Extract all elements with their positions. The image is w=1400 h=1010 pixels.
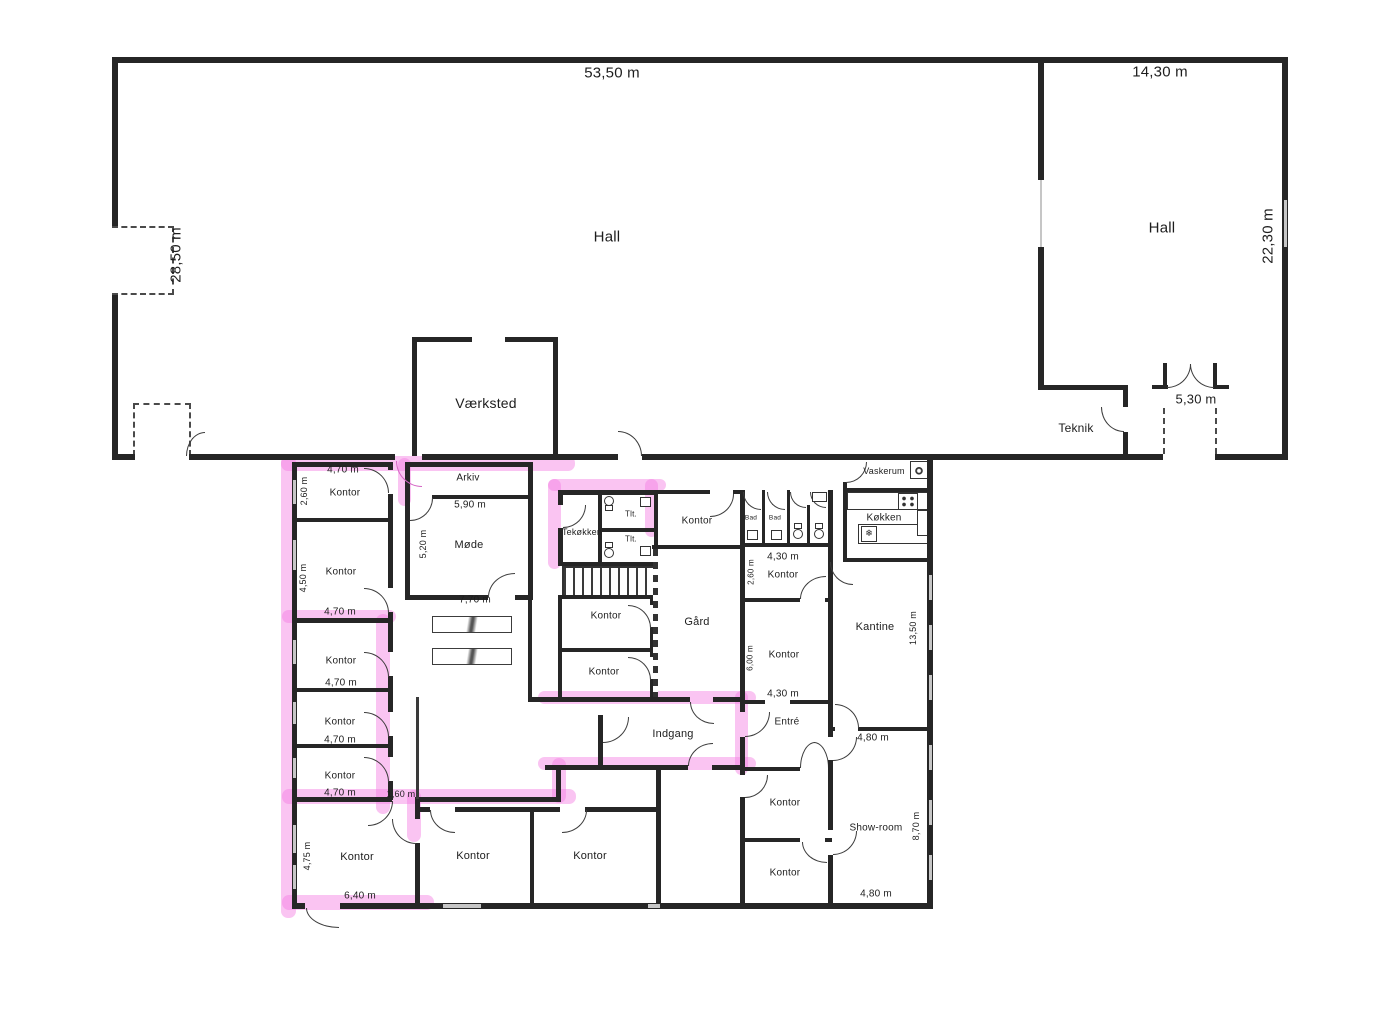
wall [858, 727, 932, 731]
door-arc [488, 573, 515, 597]
toilet-icon [814, 524, 824, 539]
window [293, 702, 296, 724]
sink-icon [747, 530, 758, 540]
gate-opening [133, 403, 135, 456]
wall [828, 490, 833, 730]
sink-icon [812, 492, 827, 502]
wall [1038, 247, 1044, 385]
room-label-kontor: Kontor [326, 567, 357, 578]
door-arc [802, 842, 827, 863]
wall [388, 736, 393, 757]
door-arc [306, 908, 339, 928]
dim-label: 4,80 m [857, 733, 889, 744]
dim-label: 1,60 m [387, 789, 416, 799]
door-arc [743, 492, 761, 510]
wall [112, 295, 118, 460]
window [929, 855, 932, 880]
wall [412, 337, 417, 456]
floor-plan: ❄ 53,50 m 28,50 m Hall 14,30 m 22,30 m H… [0, 0, 1400, 1010]
dim-label: 53,50 m [584, 65, 640, 82]
door-arc [800, 576, 826, 599]
toilet-icon [604, 543, 614, 558]
room-label-entre: Entré [775, 717, 800, 728]
room-label-vaskerum: Vaskerum [863, 466, 904, 476]
wall [292, 518, 392, 522]
wall [415, 843, 420, 909]
dim-label: 28,50 m [168, 227, 185, 283]
door-arc [710, 494, 734, 517]
door-arc [790, 492, 806, 508]
wall [112, 57, 1288, 63]
washer-icon [910, 461, 928, 479]
room-label-kontor: Kontor [573, 850, 607, 862]
wall [553, 337, 558, 456]
stove-icon [898, 493, 918, 510]
room-label-kantine: Kantine [856, 621, 895, 633]
window [293, 865, 296, 889]
window [293, 758, 296, 778]
door-arc [618, 431, 642, 456]
ramp-icon [432, 616, 512, 633]
window [929, 745, 932, 770]
wall [292, 903, 305, 909]
room-label-toilet: Tlt. [625, 535, 637, 544]
door-arc [833, 737, 857, 761]
room-label-kontor: Kontor [325, 717, 356, 728]
room-label-tekokken: Tekøkken [562, 527, 602, 537]
room-label-kontor: Kontor [682, 516, 713, 527]
room-label-bad: Bad [745, 515, 757, 522]
wall [740, 598, 800, 602]
wall [558, 490, 563, 505]
room-label-indgang: Indgang [652, 728, 693, 740]
dim-label: 4,70 m [324, 788, 356, 799]
door-arc [410, 498, 433, 521]
room-label-kontor: Kontor [589, 667, 620, 678]
dim-label: 4,30 m [767, 552, 799, 563]
door-arc [690, 702, 714, 724]
window [1040, 180, 1042, 247]
wall [422, 454, 618, 460]
wall [388, 462, 393, 470]
room-label-moede: Møde [455, 539, 484, 551]
dim-label: 4,30 m [767, 689, 799, 700]
dim-label: 4,75 m [302, 842, 312, 871]
door-arc [830, 562, 853, 585]
dim-label: 4,50 m [298, 564, 308, 593]
window [648, 904, 660, 908]
dim-label: 22,30 m [1260, 208, 1277, 264]
courtyard-wall [653, 549, 658, 697]
wall [455, 807, 560, 812]
dim-label: 8,70 m [911, 812, 921, 841]
door-arc [800, 742, 815, 768]
wall [652, 490, 710, 494]
wall [740, 838, 800, 842]
wall [418, 903, 930, 909]
wall [415, 807, 430, 812]
wall [416, 697, 419, 799]
door-arc [562, 810, 587, 833]
wall [292, 618, 392, 623]
wall [528, 598, 532, 697]
wall [843, 558, 932, 562]
wall [1038, 454, 1163, 460]
wall [740, 767, 800, 771]
door-arc [1190, 364, 1214, 388]
dim-label: 2,60 m [747, 559, 756, 585]
wall [340, 903, 420, 909]
wall [415, 797, 561, 802]
wall [292, 688, 388, 692]
door-arc [745, 712, 770, 737]
wall [412, 337, 472, 342]
dim-label: 5,20 m [418, 530, 428, 559]
dim-label: 7,70 m [459, 595, 491, 606]
sink-icon [640, 497, 651, 507]
wall [1282, 57, 1288, 460]
room-label-gaard: Gård [684, 616, 709, 628]
wall [807, 505, 810, 543]
gate-opening [133, 403, 191, 405]
gate-opening [1215, 408, 1217, 454]
wall [388, 494, 393, 588]
dim-label: 4,70 m [324, 607, 356, 618]
room-label-kontor: Kontor [769, 650, 800, 661]
window [929, 575, 932, 600]
wall [405, 462, 533, 467]
toilet-icon [604, 496, 614, 511]
wall [828, 760, 833, 830]
door-arc [628, 605, 651, 628]
stairs-icon [562, 566, 656, 598]
wall [203, 454, 395, 460]
window [929, 800, 932, 825]
room-label-kontor: Kontor [330, 488, 361, 499]
room-label-kontor: Kontor [326, 656, 357, 667]
dim-label: 4,80 m [860, 889, 892, 900]
wall [432, 495, 533, 499]
room-label-koekken: Køkken [866, 513, 901, 524]
wall [505, 337, 558, 342]
window [293, 540, 296, 570]
wall [585, 807, 660, 812]
dim-label: 2,60 m [299, 477, 309, 506]
window [929, 625, 932, 650]
door-arc [368, 801, 393, 826]
window [929, 675, 932, 700]
room-label-hall: Hall [1149, 220, 1176, 237]
toilet-icon [793, 524, 803, 539]
wall [828, 855, 833, 908]
window [1284, 200, 1287, 247]
wall [740, 543, 832, 547]
gate-opening [1163, 408, 1165, 454]
wall [1215, 454, 1288, 460]
wall [652, 545, 744, 549]
wall [388, 676, 393, 712]
room-label-showroom: Show-room [850, 823, 903, 834]
room-label-kontor: Kontor [770, 868, 801, 879]
sink-icon [771, 530, 782, 540]
door-arc [688, 743, 713, 766]
dim-label: 14,30 m [1132, 64, 1188, 81]
wall [1038, 57, 1044, 180]
wall [598, 528, 658, 532]
wall [558, 490, 658, 495]
wall [528, 697, 690, 702]
wall [740, 797, 745, 908]
door-arc [392, 819, 416, 844]
wall [528, 462, 533, 598]
room-label-hall: Hall [594, 229, 621, 246]
wall [740, 700, 765, 704]
wall [558, 595, 658, 599]
gate-opening [112, 293, 174, 295]
window [293, 640, 296, 664]
sink-icon [640, 546, 651, 556]
wall [112, 454, 135, 460]
door-arc [430, 810, 455, 833]
dim-label: 6,40 m [344, 891, 376, 902]
room-label-kontor: Kontor [456, 850, 490, 862]
dim-label: 5,30 m [1176, 392, 1217, 407]
room-label-kontor: Kontor [340, 851, 374, 863]
counter [847, 492, 932, 510]
door-arc [628, 657, 651, 680]
wall [828, 730, 833, 737]
room-label-toilet: Tlt. [625, 510, 637, 519]
wall [558, 595, 562, 697]
room-label-bad: Bad [769, 515, 781, 522]
room-label-vaerksted: Værksted [455, 395, 517, 411]
window [443, 904, 481, 908]
dim-label: 6,00 m [746, 645, 755, 671]
door-arc [767, 492, 785, 510]
wall [556, 765, 561, 801]
wall [545, 765, 688, 770]
wall [1038, 385, 1128, 390]
wall [787, 490, 790, 543]
dim-label: 4,70 m [325, 678, 357, 689]
wall [790, 700, 832, 704]
wall [530, 807, 534, 905]
dim-label: 4,70 m [324, 735, 356, 746]
room-label-arkiv: Arkiv [456, 473, 479, 484]
room-label-kontor: Kontor [768, 570, 799, 581]
wall [112, 57, 118, 228]
door-arc [603, 717, 629, 743]
wall [1123, 385, 1128, 407]
wall [642, 454, 1038, 460]
door-arc [563, 505, 586, 528]
room-label-kontor: Kontor [591, 611, 622, 622]
door-arc [835, 704, 859, 728]
dim-label: 13,50 m [908, 611, 918, 645]
door-arc [1167, 364, 1191, 388]
room-label-kontor: Kontor [770, 798, 801, 809]
door-arc [745, 775, 768, 798]
door-arc [833, 831, 857, 855]
window [293, 480, 296, 504]
wall [762, 490, 765, 543]
wall [558, 648, 654, 652]
wall [1123, 432, 1128, 460]
wall [656, 770, 661, 905]
door-arc [364, 468, 389, 493]
room-label-kontor: Kontor [325, 771, 356, 782]
dim-label: 4,70 m [327, 465, 359, 476]
door-arc [1101, 407, 1124, 432]
window [293, 825, 296, 853]
room-label-teknik: Teknik [1058, 421, 1093, 435]
ramp-icon [432, 648, 512, 665]
freezer-icon: ❄ [861, 526, 877, 542]
door-arc [364, 588, 389, 613]
dim-label: 5,90 m [454, 500, 486, 511]
gate-opening [112, 226, 174, 228]
door-arc [814, 742, 829, 768]
